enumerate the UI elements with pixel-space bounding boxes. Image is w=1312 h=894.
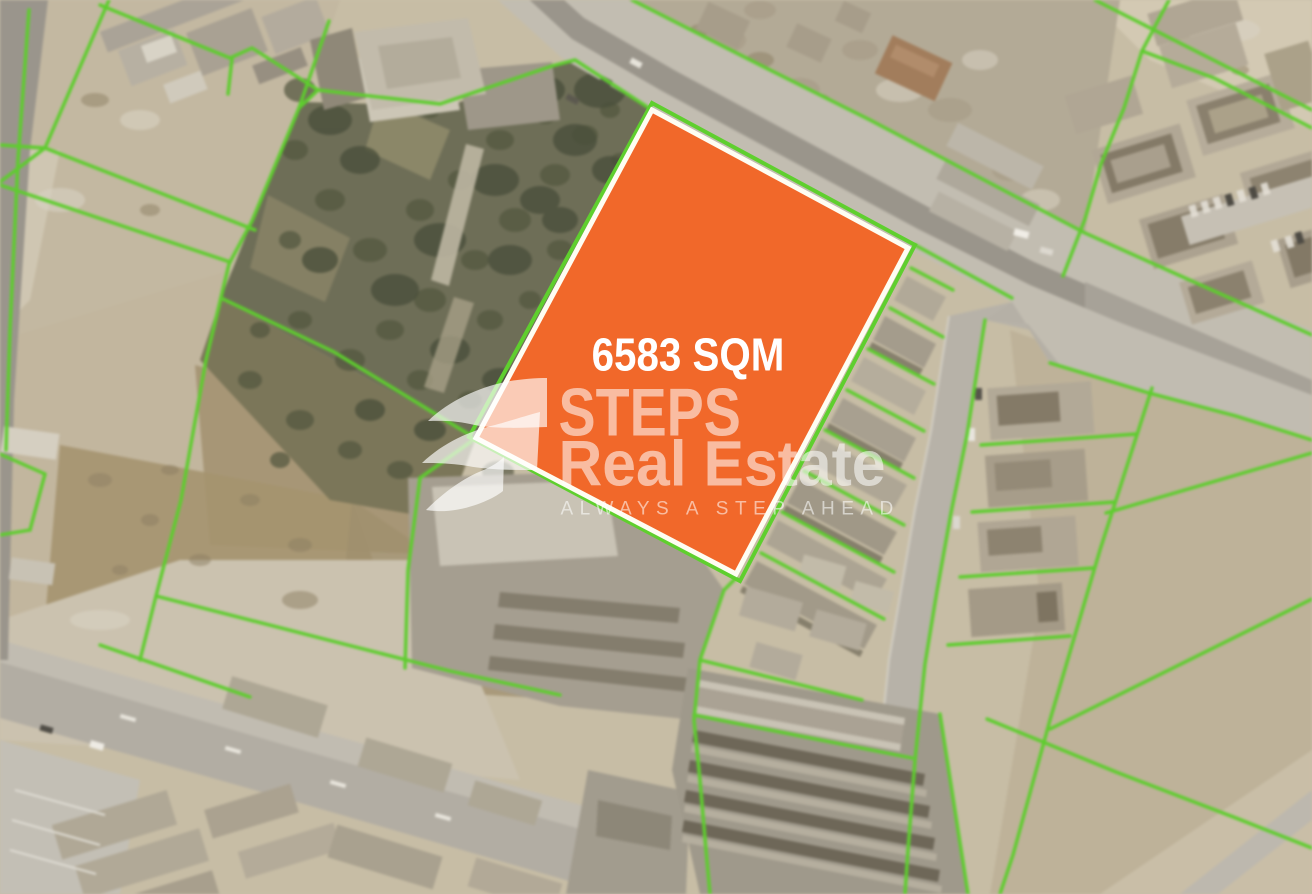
svg-text:ALWAYS A STEP AHEAD: ALWAYS A STEP AHEAD xyxy=(561,499,900,520)
svg-text:Real Estate: Real Estate xyxy=(559,429,886,500)
svg-text:6583 SQM: 6583 SQM xyxy=(592,330,785,381)
